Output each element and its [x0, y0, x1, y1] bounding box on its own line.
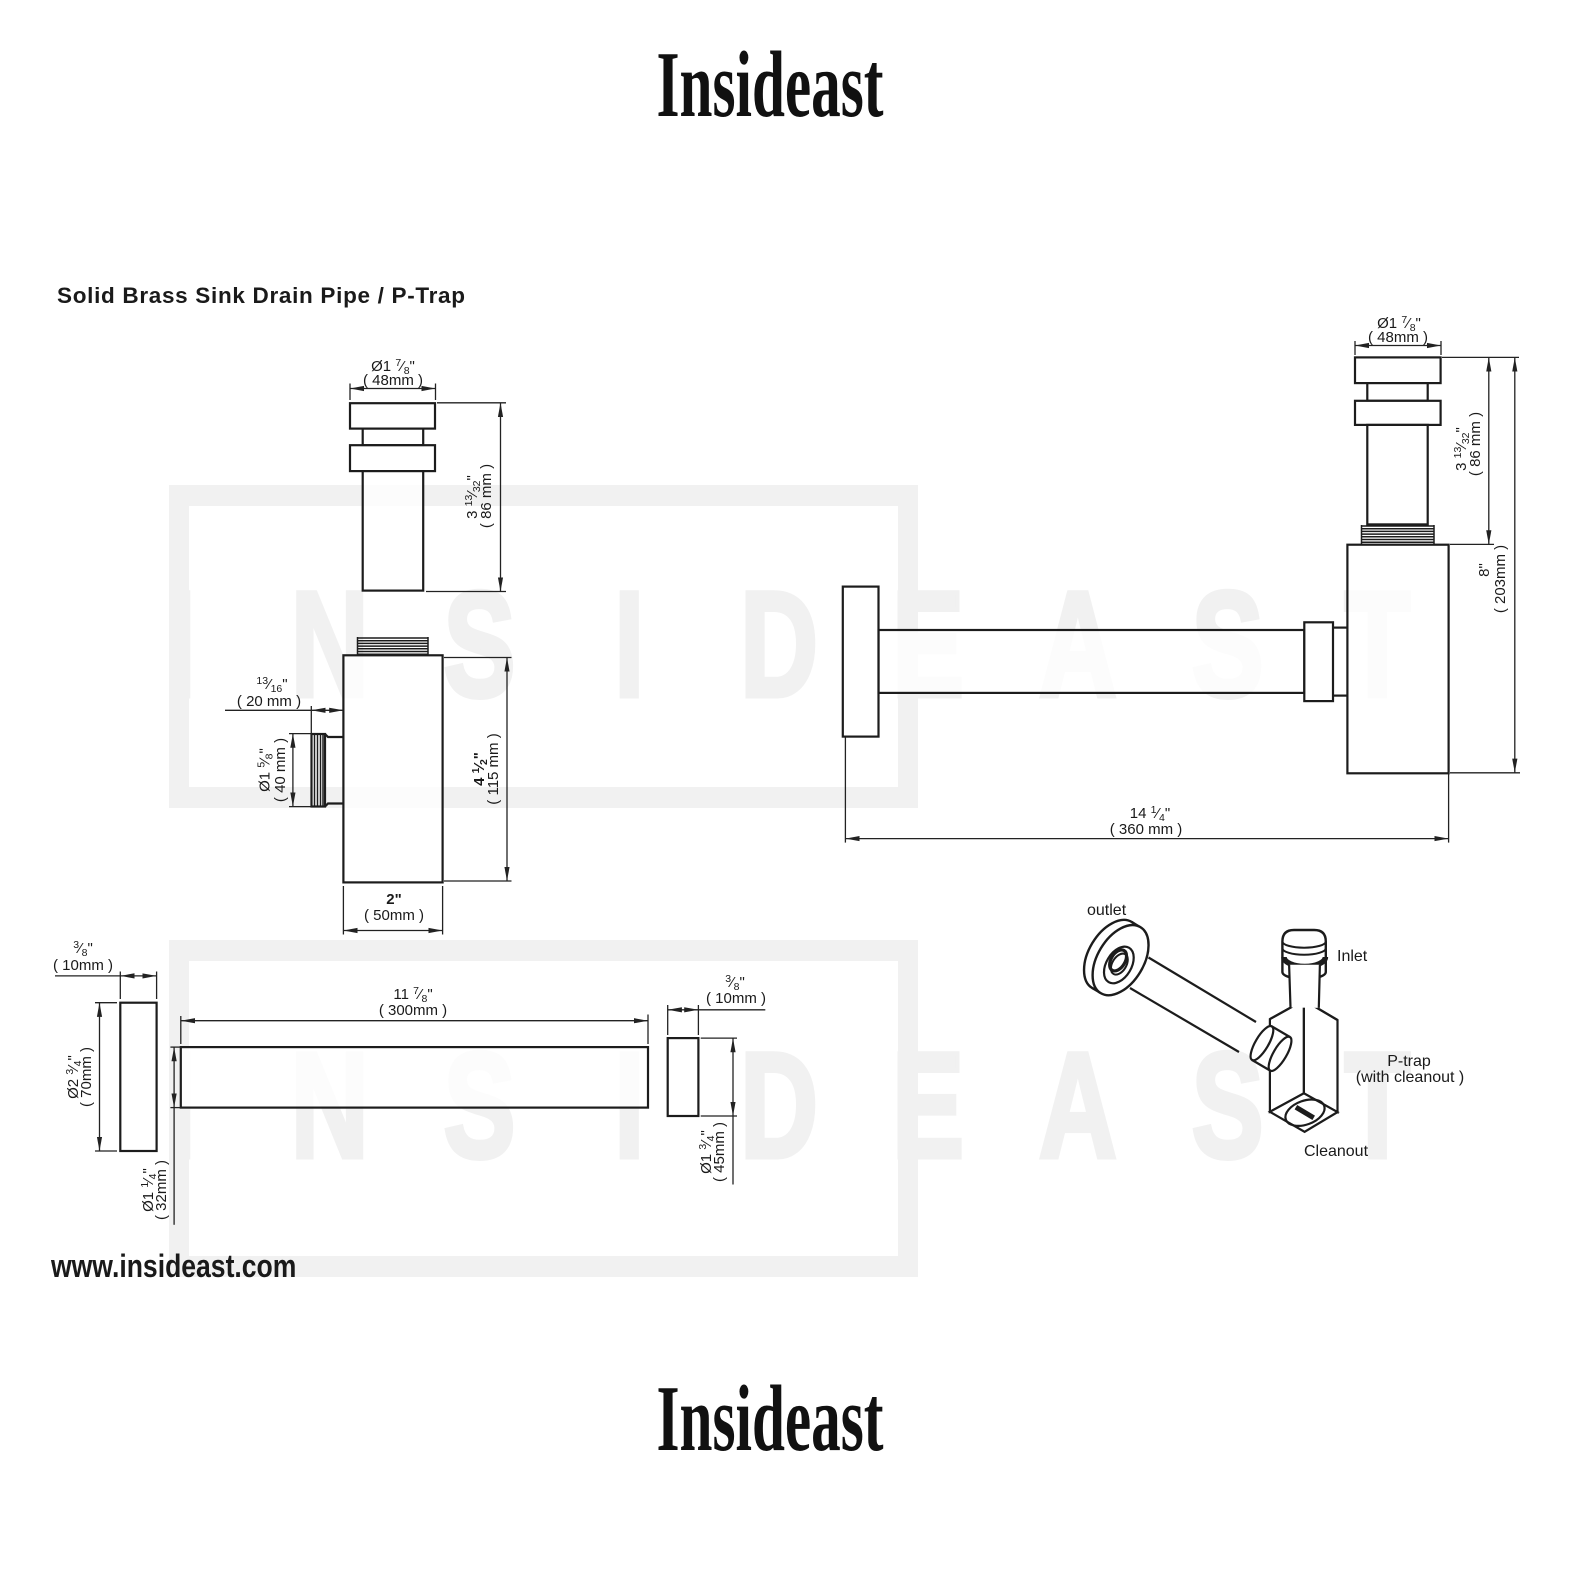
svg-text:( 48mm ): ( 48mm ) — [1368, 329, 1428, 346]
svg-text:www.insideast.com: www.insideast.com — [50, 1249, 296, 1285]
svg-text:( 45mm ): ( 45mm ) — [711, 1122, 728, 1182]
svg-text:( 50mm ): ( 50mm ) — [364, 907, 424, 924]
svg-text:( 360 mm ): ( 360 mm ) — [1110, 821, 1183, 838]
svg-text:I: I — [166, 561, 196, 729]
svg-text:( 32mm ): ( 32mm ) — [153, 1160, 170, 1220]
svg-text:P-trap: P-trap — [1387, 1053, 1431, 1070]
svg-text:Inlet: Inlet — [1337, 948, 1368, 965]
svg-text:outlet: outlet — [1087, 902, 1127, 919]
svg-text:( 10mm ): ( 10mm ) — [706, 990, 766, 1007]
svg-text:E: E — [892, 1022, 964, 1190]
svg-text:(with cleanout ): (with cleanout ) — [1356, 1069, 1465, 1086]
svg-text:( 203mm ): ( 203mm ) — [1492, 545, 1509, 613]
svg-text:( 86 mm ): ( 86 mm ) — [478, 464, 495, 528]
svg-text:( 10mm ): ( 10mm ) — [53, 957, 113, 974]
svg-text:S: S — [444, 561, 516, 729]
svg-text:( 48mm ): ( 48mm ) — [363, 372, 423, 389]
svg-text:A: A — [1039, 1022, 1117, 1190]
svg-text:( 20 mm ): ( 20 mm ) — [237, 693, 301, 710]
svg-text:I: I — [614, 561, 644, 729]
svg-text:( 86 mm ): ( 86 mm ) — [1467, 412, 1484, 476]
svg-text:2": 2" — [386, 891, 401, 908]
svg-text:( 70mm ): ( 70mm ) — [78, 1047, 95, 1107]
svg-text:8": 8" — [1476, 563, 1493, 577]
svg-text:Solid Brass Sink Drain Pipe /: Solid Brass Sink Drain Pipe / P-Trap — [57, 283, 465, 308]
svg-text:( 40 mm ): ( 40 mm ) — [272, 738, 289, 802]
svg-text:D: D — [740, 561, 818, 729]
svg-text:D: D — [740, 1022, 818, 1190]
svg-text:Insideast: Insideast — [656, 32, 883, 136]
svg-text:( 115 mm ): ( 115 mm ) — [485, 733, 502, 804]
svg-text:Insideast: Insideast — [656, 1366, 883, 1470]
svg-text:T: T — [1344, 1022, 1410, 1190]
svg-text:( 300mm ): ( 300mm ) — [379, 1002, 447, 1019]
svg-text:Cleanout: Cleanout — [1304, 1143, 1369, 1160]
